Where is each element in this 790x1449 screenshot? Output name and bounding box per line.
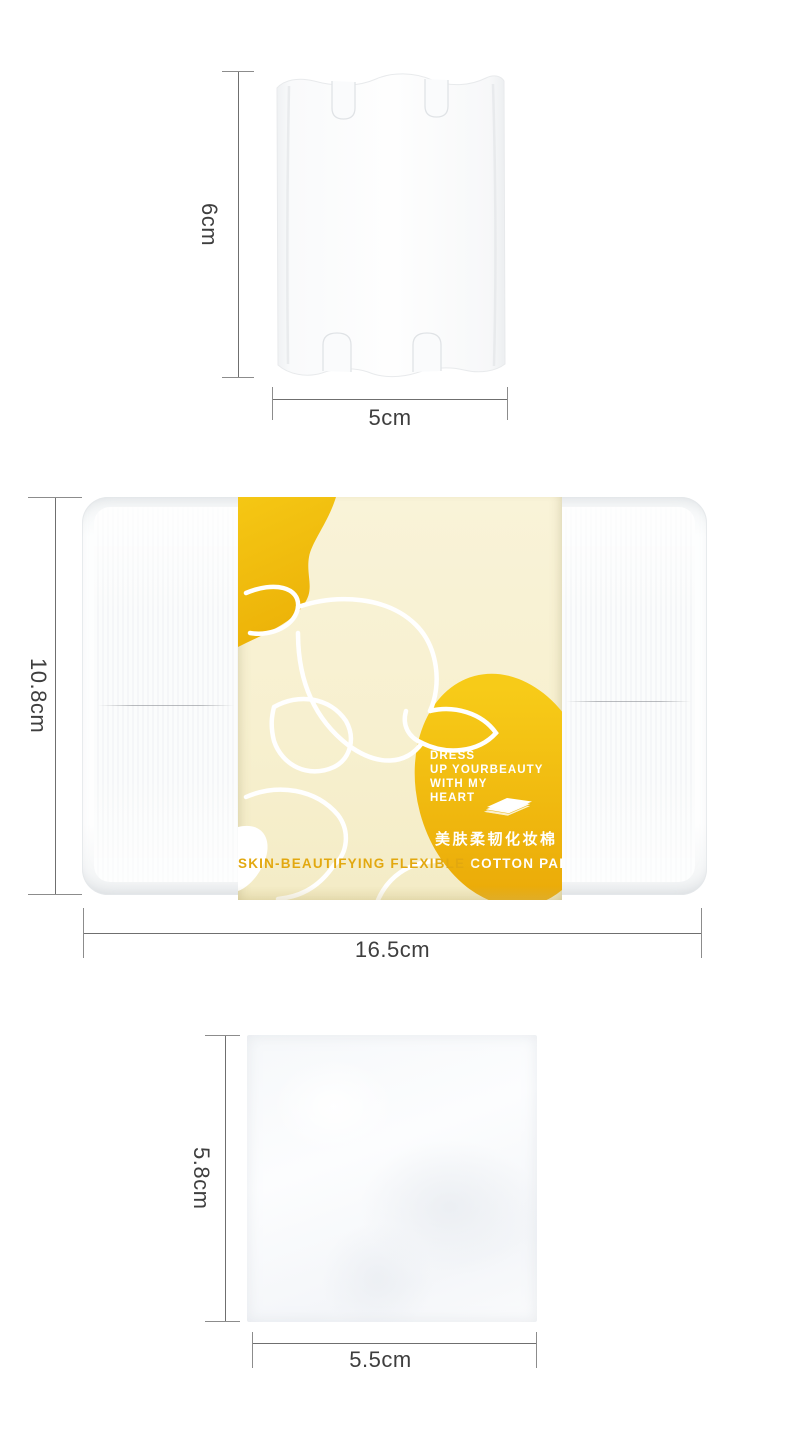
label-product-name: SKIN-BEAUTIFYING FLEXIBLE COTTON PAD xyxy=(238,856,562,871)
dimension-label-6cm: 6cm xyxy=(196,203,222,246)
height-dimension-top-pad xyxy=(222,71,254,378)
dimension-line xyxy=(83,933,702,934)
dimension-line xyxy=(225,1035,226,1322)
slogan-line: UP YOURBEAUTY xyxy=(430,763,544,777)
dimension-label-10-8cm: 10.8cm xyxy=(25,658,51,733)
bottom-pad-image xyxy=(247,1035,537,1322)
dimension-line xyxy=(55,497,56,895)
cotton-pads-stack-left xyxy=(94,507,238,882)
pad-stack-crease xyxy=(566,701,691,702)
pad-body xyxy=(277,74,505,377)
cotton-pads-stack-right xyxy=(562,507,695,882)
dimension-endcap xyxy=(222,377,254,378)
label-bottom-shade xyxy=(238,886,562,900)
dimension-label-5cm: 5cm xyxy=(368,405,411,430)
pad-stack-crease xyxy=(98,705,234,706)
label-chinese-name: 美肤柔韧化妆棉 xyxy=(435,828,558,849)
dimension-label-5-8cm: 5.8cm xyxy=(188,1147,214,1209)
dimension-label-5-5cm: 5.5cm xyxy=(349,1347,411,1372)
dimension-label-16-5cm: 16.5cm xyxy=(355,937,430,962)
slogan-line: WITH MY xyxy=(430,777,544,791)
dimension-line xyxy=(238,71,239,378)
product-label: DRESS UP YOURBEAUTY WITH MY HEART 美肤柔韧化妆… xyxy=(238,497,562,900)
cotton-pad-stack-icon xyxy=(475,793,535,819)
top-pad-image xyxy=(272,68,508,380)
dimension-endcap xyxy=(222,71,254,72)
cotton-pad-size-diagram: 6cm 5cm xyxy=(0,0,790,1449)
product-name-text: SKIN-BEAUTIFYING FLEXIBLE COTTON PAD xyxy=(238,856,562,871)
slogan-line: DRESS xyxy=(430,749,544,763)
dimension-line xyxy=(252,1343,537,1344)
dimension-line xyxy=(272,399,508,400)
